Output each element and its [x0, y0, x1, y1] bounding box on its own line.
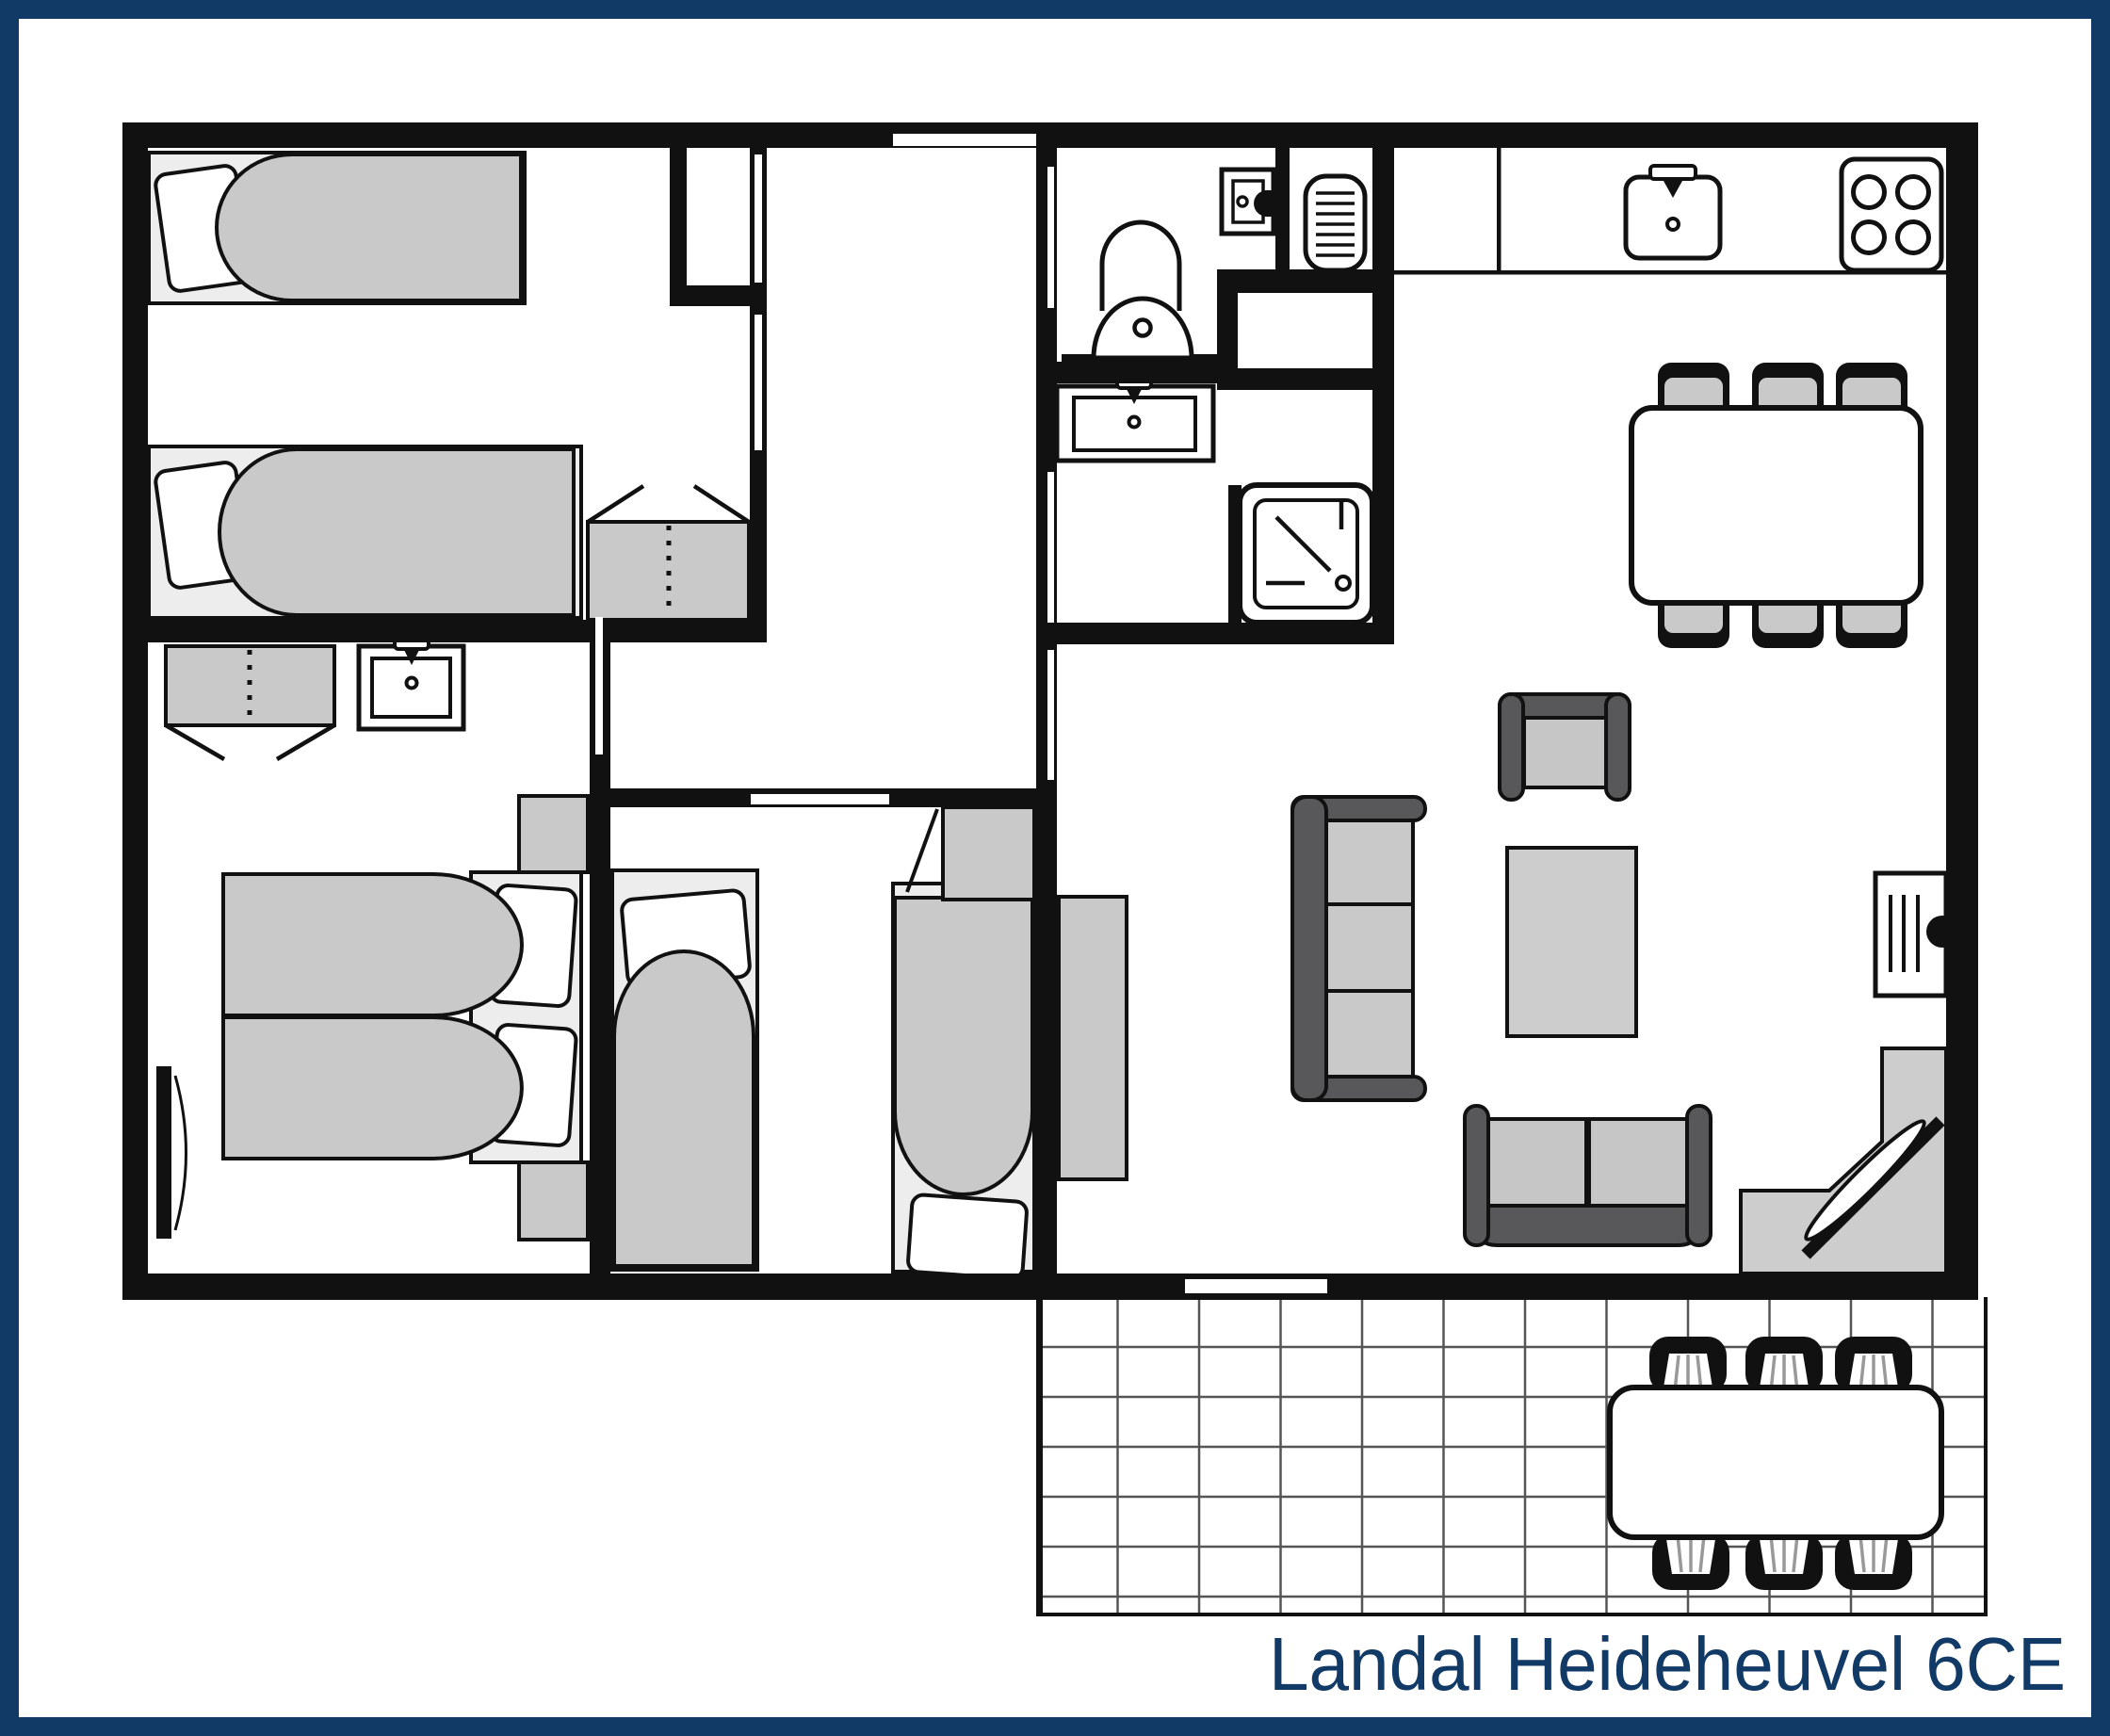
svg-text:Landal Heideheuvel 6CE: Landal Heideheuvel 6CE [1269, 1622, 2066, 1706]
